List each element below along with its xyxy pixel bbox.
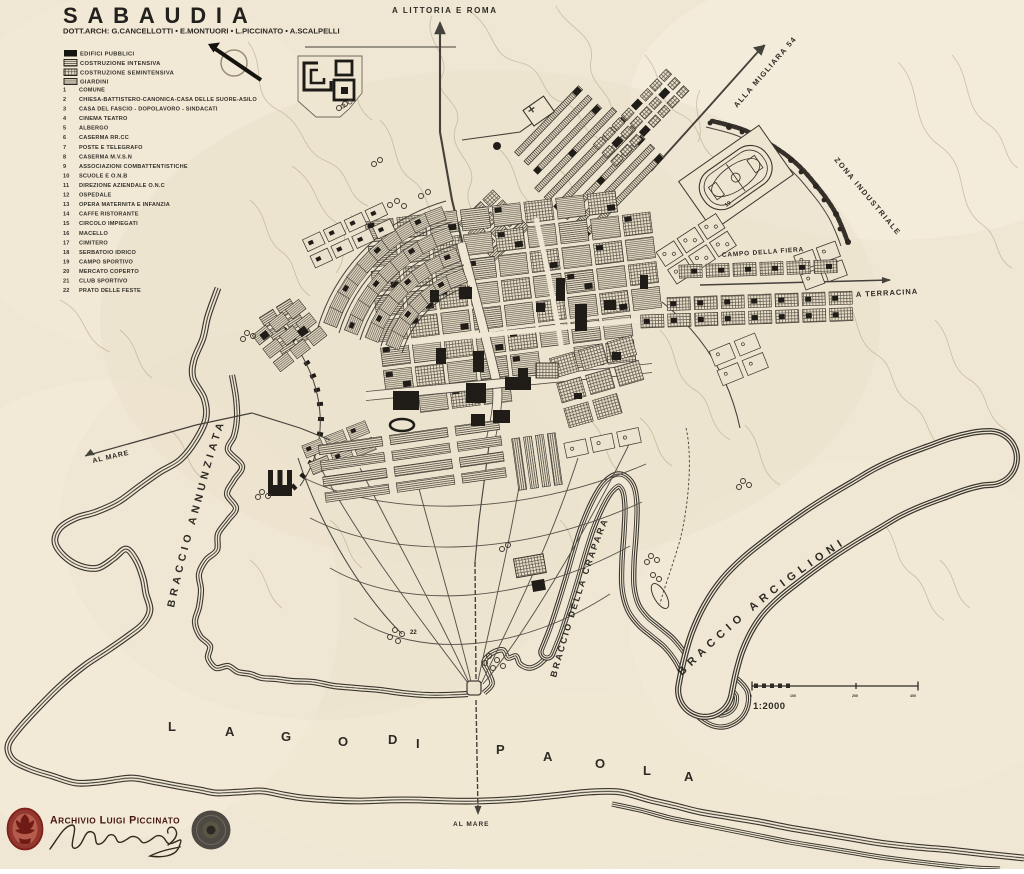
svg-text:MERCATO COPERTO: MERCATO COPERTO [79, 269, 139, 275]
svg-text:CHIESA-BATTISTERO-CANONICA-CAS: CHIESA-BATTISTERO-CANONICA-CASA DELLE SU… [79, 97, 257, 103]
svg-text:10: 10 [63, 173, 70, 179]
svg-text:COSTRUZIONE INTENSIVA: COSTRUZIONE INTENSIVA [80, 61, 161, 67]
svg-text:100: 100 [790, 694, 796, 698]
svg-text:A LITTORIA E ROMA: A LITTORIA E ROMA [392, 6, 498, 15]
svg-text:L: L [168, 719, 176, 734]
svg-text:22: 22 [63, 288, 70, 294]
svg-text:OSPEDALE: OSPEDALE [79, 193, 111, 199]
svg-text:A: A [684, 769, 694, 784]
svg-text:ALBERGO: ALBERGO [79, 126, 109, 132]
svg-text:3: 3 [63, 107, 66, 113]
svg-text:16: 16 [63, 231, 70, 237]
svg-text:PRATO DELLE FESTE: PRATO DELLE FESTE [79, 288, 141, 294]
svg-text:O: O [338, 734, 348, 749]
svg-text:CAMPO SPORTIVO: CAMPO SPORTIVO [79, 259, 134, 265]
svg-text:CLUB SPORTIVO: CLUB SPORTIVO [79, 279, 128, 285]
svg-text:20: 20 [63, 269, 70, 275]
svg-text:DOTT.ARCH: G.CANCELLOTTI • E.M: DOTT.ARCH: G.CANCELLOTTI • E.MONTUORI • … [63, 27, 340, 36]
svg-text:CIMITERO: CIMITERO [79, 240, 108, 246]
svg-text:ARCHIVIO LUIGI PICCINATO: ARCHIVIO LUIGI PICCINATO [50, 815, 180, 827]
svg-text:1: 1 [63, 88, 66, 94]
svg-text:6: 6 [63, 135, 66, 141]
svg-text:DIREZIONE AZIENDALE O.N.C: DIREZIONE AZIENDALE O.N.C [79, 183, 165, 189]
svg-text:7: 7 [63, 145, 66, 151]
svg-text:A: A [543, 749, 553, 764]
svg-text:2: 2 [63, 97, 66, 103]
svg-text:SABAUDIA: SABAUDIA [63, 3, 258, 28]
svg-text:SCUOLE E O.N.B: SCUOLE E O.N.B [79, 173, 128, 179]
svg-text:GIARDINI: GIARDINI [80, 80, 109, 86]
svg-text:200: 200 [852, 694, 858, 698]
svg-text:13: 13 [63, 202, 70, 208]
svg-text:MACELLO: MACELLO [79, 231, 109, 237]
svg-text:CIRCOLO IMPIEGATI: CIRCOLO IMPIEGATI [79, 221, 138, 227]
svg-text:COMUNE: COMUNE [79, 88, 105, 94]
svg-text:CAFFE RISTORANTE: CAFFE RISTORANTE [79, 212, 139, 218]
svg-text:O: O [595, 756, 605, 771]
svg-text:0: 0 [750, 694, 752, 698]
svg-text:P: P [496, 742, 505, 757]
svg-text:21: 21 [63, 279, 70, 285]
svg-text:G: G [281, 729, 291, 744]
svg-text:14: 14 [63, 212, 70, 218]
svg-text:18: 18 [63, 250, 70, 256]
svg-text:CASERMA RR.CC: CASERMA RR.CC [79, 135, 129, 141]
svg-text:A: A [225, 724, 235, 739]
svg-text:SERBATOIO IDRICO: SERBATOIO IDRICO [79, 250, 137, 256]
svg-text:OPERA MATERNITA E INFANZIA: OPERA MATERNITA E INFANZIA [79, 202, 170, 208]
svg-text:12: 12 [63, 193, 70, 199]
svg-text:CASERMA M.V.S.N: CASERMA M.V.S.N [79, 154, 132, 160]
svg-text:9: 9 [63, 164, 66, 170]
svg-text:CASA DEL FASCIO - DOPOLAVO: CASA DEL FASCIO - DOPOLAVORO - SINDACATI [79, 107, 218, 113]
svg-text:11: 11 [63, 183, 69, 189]
svg-text:19: 19 [63, 259, 70, 265]
svg-text:1:2000: 1:2000 [753, 701, 786, 712]
svg-text:ASSOCIAZIONI COMBATTENTISTICH: ASSOCIAZIONI COMBATTENTISTICHE [79, 164, 188, 170]
svg-text:400: 400 [910, 694, 916, 698]
svg-text:L: L [643, 763, 651, 778]
svg-text:17: 17 [63, 240, 70, 246]
svg-text:POSTE E TELEGRAFO: POSTE E TELEGRAFO [79, 145, 143, 151]
svg-text:I: I [416, 736, 420, 751]
svg-text:22: 22 [410, 630, 417, 636]
svg-text:COSTRUZIONE SEMINTENSIVA: COSTRUZIONE SEMINTENSIVA [80, 71, 175, 77]
svg-text:EDIFICI PUBBLICI: EDIFICI PUBBLICI [80, 52, 134, 58]
svg-text:8: 8 [63, 154, 66, 160]
svg-text:AL MARE: AL MARE [453, 821, 490, 828]
svg-text:5: 5 [63, 126, 66, 132]
svg-text:D: D [388, 732, 397, 747]
svg-text:CINEMA TEATRO: CINEMA TEATRO [79, 116, 128, 122]
svg-text:15: 15 [63, 221, 70, 227]
